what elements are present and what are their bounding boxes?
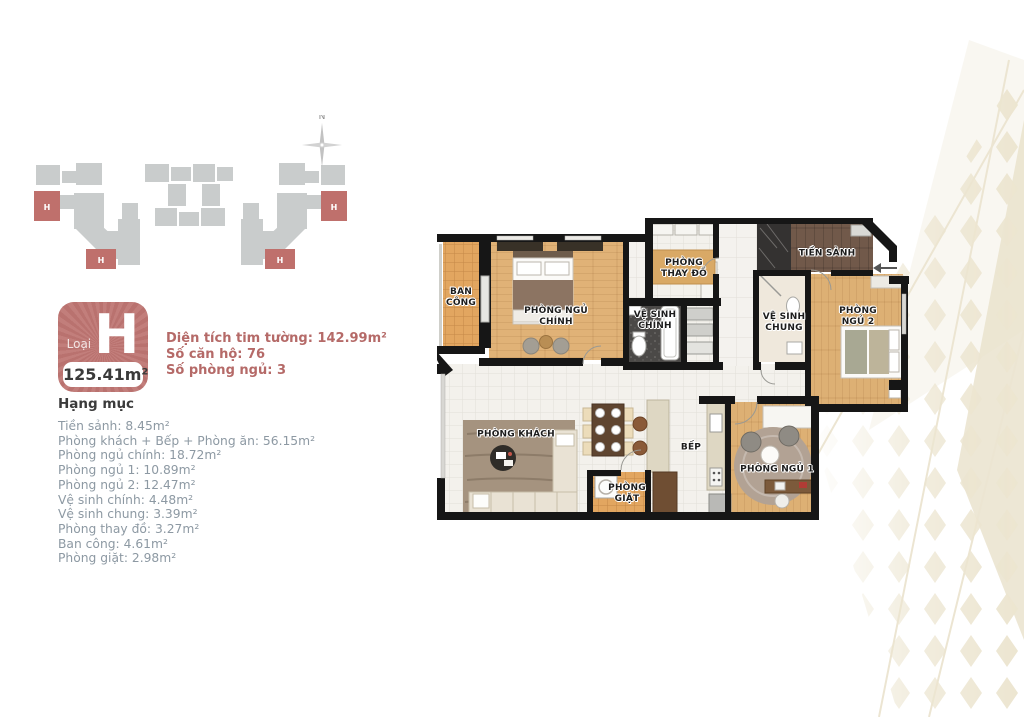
specs-item: Vệ sinh chính: 4.48m² — [58, 493, 315, 508]
unit-marker-h: H — [331, 203, 338, 212]
room-label-closet: PHÒNG THAY ĐỒ — [661, 258, 707, 280]
site-plan-building-middle — [145, 164, 233, 226]
compass-icon: N — [302, 115, 342, 167]
floor-plan: BAN CÔNG PHÒNG NGỦ CHÍNH VỆ SINH CHÍNH P… — [437, 218, 909, 530]
site-plan: H H H H N — [18, 115, 348, 280]
room-label-kitchen: BẾP — [681, 443, 701, 454]
room-label-bedroom-2: PHÒNG NGỦ 2 — [833, 306, 884, 328]
badge-area-value: 125.41m² — [63, 362, 143, 387]
specs-item: Phòng giặt: 2.98m² — [58, 551, 315, 566]
badge-type-letter: H — [94, 309, 139, 360]
unit-type-badge: Loại H 125.41m² — [58, 302, 148, 392]
badge-type-label: Loại — [67, 337, 92, 351]
info-line-unit-count: Số căn hộ: 76 — [166, 347, 387, 363]
room-foyer — [757, 222, 873, 272]
badge-top: Loại H — [58, 302, 148, 360]
entrance-arrow-icon — [873, 263, 897, 273]
room-label-laundry: PHÒNG GIẶT — [608, 483, 646, 505]
info-line-bedroom-count: Số phòng ngủ: 3 — [166, 363, 387, 379]
specs-item: Tiền sảnh: 8.45m² — [58, 419, 315, 434]
dining-set — [583, 404, 633, 456]
room-label-shared-bath: VỆ SINH CHUNG — [763, 312, 806, 334]
unit-marker-h: H — [277, 256, 284, 265]
info-line-gross-area: Diện tích tim tường: 142.99m² — [166, 331, 387, 347]
specs-item: Phòng ngủ 1: 10.89m² — [58, 463, 315, 478]
room-label-bedroom-1: PHÒNG NGỦ 1 — [740, 465, 814, 476]
specs-title: Hạng mục — [58, 396, 315, 412]
unit-marker-h: H — [44, 203, 51, 212]
room-label-master-bedroom: PHÒNG NGỦ CHÍNH — [524, 306, 588, 328]
specs-item: Ban công: 4.61m² — [58, 537, 315, 552]
bath-lobby-shelves — [685, 308, 713, 354]
specs-item: Vệ sinh chung: 3.39m² — [58, 507, 315, 522]
specs-list: Hạng mục Tiền sảnh: 8.45m² Phòng khách +… — [58, 396, 315, 566]
unit-info: Diện tích tim tường: 142.99m² Số căn hộ:… — [166, 331, 387, 379]
room-label-master-bath: VỆ SINH CHÍNH — [634, 310, 677, 332]
specs-item: Phòng ngủ chính: 18.72m² — [58, 448, 315, 463]
specs-item: Phòng ngủ 2: 12.47m² — [58, 478, 315, 493]
specs-item: Phòng thay đồ: 3.27m² — [58, 522, 315, 537]
site-plan-building-left — [34, 163, 140, 269]
room-label-living: PHÒNG KHÁCH — [477, 430, 555, 441]
compass-north-label: N — [319, 115, 326, 122]
site-plan-building-right — [241, 163, 347, 269]
room-label-balcony: BAN CÔNG — [446, 287, 476, 309]
room-label-foyer: TIỀN SẢNH — [799, 249, 856, 260]
specs-item: Phòng khách + Bếp + Phòng ăn: 56.15m² — [58, 434, 315, 449]
page: H H H H N Loại H 125.41m² Diện tích tim … — [0, 0, 1024, 717]
unit-marker-h: H — [98, 256, 105, 265]
